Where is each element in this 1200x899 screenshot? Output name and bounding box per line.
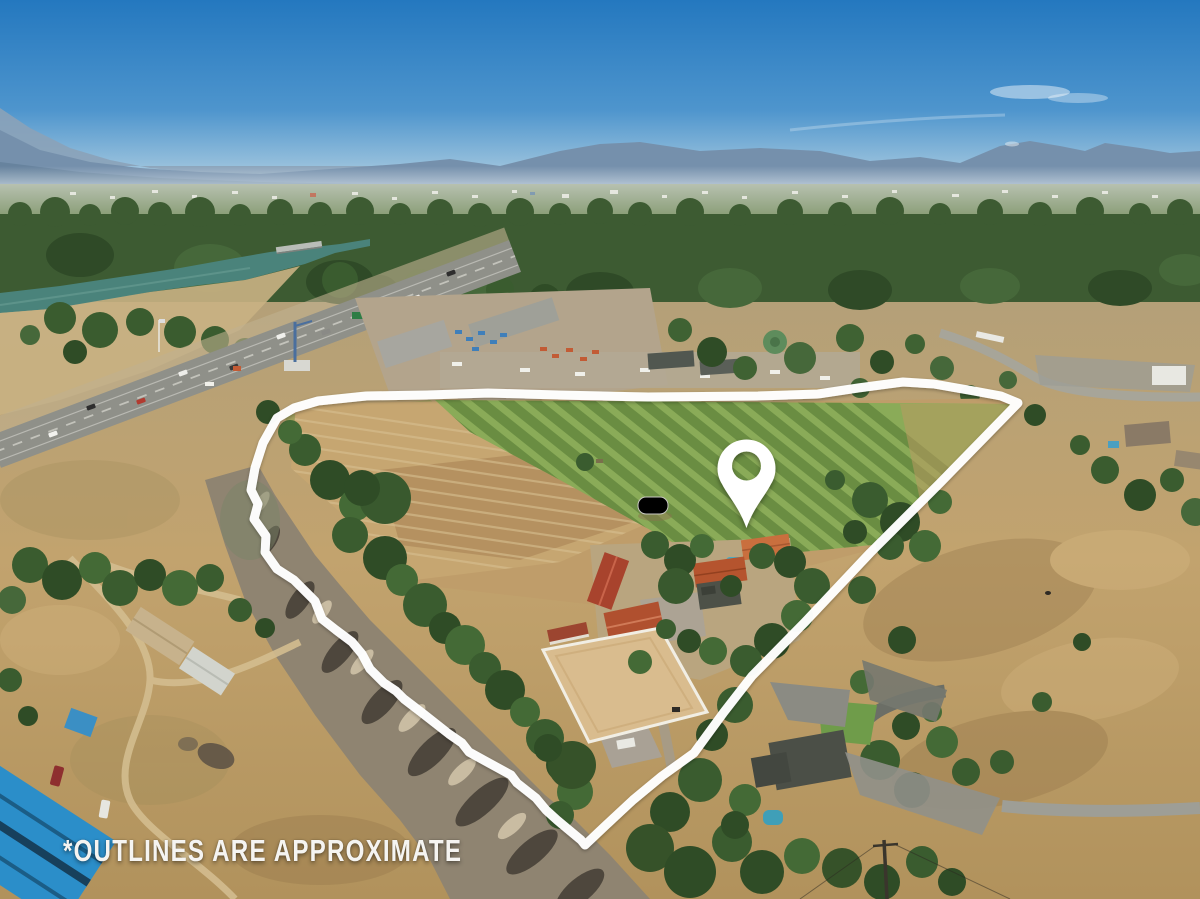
neighbor-pool	[763, 810, 783, 825]
disclaimer-text: *OUTLINES ARE APPROXIMATE	[63, 833, 462, 869]
road	[1002, 806, 1200, 811]
aerial-photo-canvas	[0, 0, 1200, 899]
white-metal-building	[1152, 366, 1186, 385]
aerial-photo: *OUTLINES ARE APPROXIMATE	[0, 0, 1200, 899]
blue-tarp	[1108, 441, 1119, 448]
vehicle	[672, 707, 680, 712]
cloud	[1048, 93, 1108, 103]
grazing-animal	[1045, 591, 1051, 595]
warehouse	[284, 360, 310, 371]
house-roof	[1124, 421, 1171, 447]
quonset-shed	[638, 497, 672, 521]
